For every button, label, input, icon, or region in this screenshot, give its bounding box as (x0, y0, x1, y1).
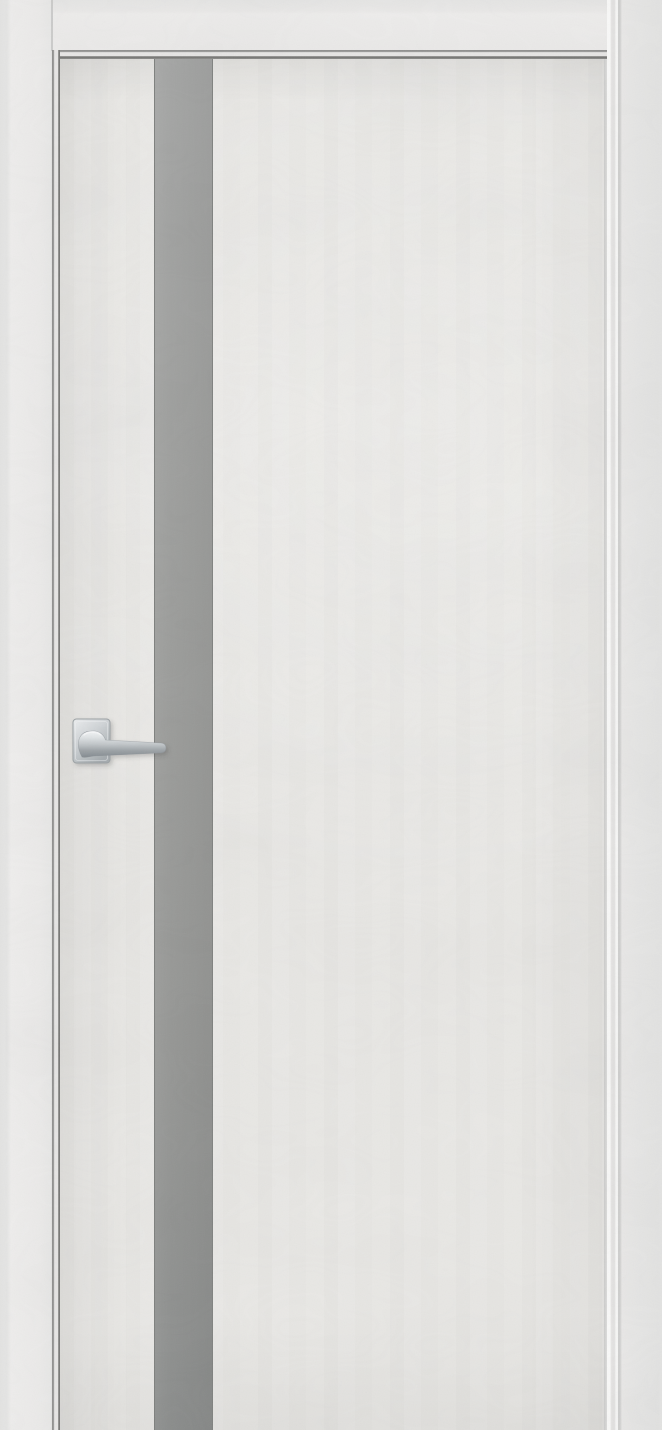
door-product-photo (0, 0, 662, 1430)
door-handle (58, 708, 178, 778)
door-frame-right-stop-highlight (607, 0, 619, 1430)
door-leaf-right-edge-shadow (604, 59, 607, 1430)
frame-joint-line (51, 0, 53, 51)
door-frame-header (52, 0, 607, 50)
handle-lever (78, 731, 166, 757)
door-frame-left-jamb (0, 0, 52, 1430)
door-frame-right-jamb (619, 0, 662, 1430)
